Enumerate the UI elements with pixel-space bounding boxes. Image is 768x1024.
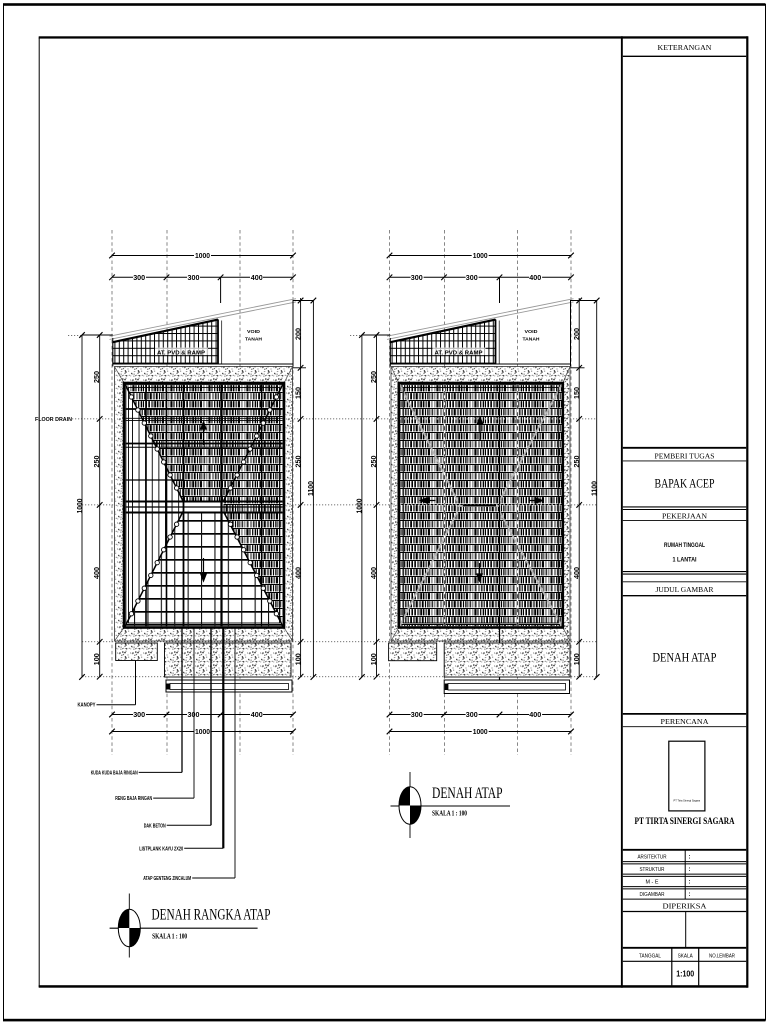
- svg-text:250: 250: [92, 456, 101, 468]
- svg-text:100: 100: [294, 653, 303, 665]
- svg-text:DIPERIKSA: DIPERIKSA: [663, 903, 707, 911]
- svg-text:300: 300: [188, 710, 200, 719]
- svg-text:150: 150: [294, 387, 303, 399]
- svg-text:1000: 1000: [473, 727, 488, 736]
- svg-text:NO.LEMBAR: NO.LEMBAR: [709, 954, 735, 960]
- svg-text:M - E: M - E: [646, 880, 659, 886]
- svg-text:KUDA KUDA BAJA RINGAN: KUDA KUDA BAJA RINGAN: [91, 771, 138, 777]
- svg-text:DENAH ATAP: DENAH ATAP: [653, 651, 717, 665]
- svg-text:150: 150: [572, 387, 581, 399]
- svg-text:TANAH: TANAH: [245, 337, 262, 342]
- svg-text:ARSITEKTUR: ARSITEKTUR: [638, 855, 667, 861]
- svg-text:DENAH ATAP: DENAH ATAP: [432, 785, 503, 802]
- svg-text:TANGGAL: TANGGAL: [639, 954, 661, 960]
- svg-text:400: 400: [251, 710, 263, 719]
- svg-text:AT. PVD & RAMP: AT. PVD & RAMP: [157, 351, 205, 357]
- svg-text:DENAH RANGKA ATAP: DENAH RANGKA ATAP: [152, 907, 271, 924]
- svg-text::: :: [689, 867, 691, 873]
- svg-text:DAK BETON: DAK BETON: [144, 823, 166, 829]
- svg-text:FLOOR DRAIN: FLOOR DRAIN: [35, 417, 72, 423]
- svg-text:KETERANGAN: KETERANGAN: [658, 44, 712, 52]
- svg-text:LISTPLANK KAYU 2X20: LISTPLANK KAYU 2X20: [139, 846, 183, 852]
- svg-text:400: 400: [529, 273, 541, 282]
- svg-text:300: 300: [188, 273, 200, 282]
- svg-text:ATAP GENTENG ZINCALUM: ATAP GENTENG ZINCALUM: [143, 876, 191, 882]
- svg-text:1000: 1000: [355, 499, 364, 514]
- svg-text:1000: 1000: [473, 251, 488, 260]
- svg-text:PERENCANA: PERENCANA: [661, 718, 709, 726]
- svg-text:100: 100: [369, 653, 378, 665]
- svg-text:250: 250: [92, 371, 101, 383]
- svg-text:JUDUL GAMBAR: JUDUL GAMBAR: [656, 586, 714, 594]
- svg-text:400: 400: [572, 567, 581, 579]
- svg-text:250: 250: [294, 456, 303, 468]
- svg-text:BAPAK ACEP: BAPAK ACEP: [655, 477, 715, 491]
- svg-text:1000: 1000: [75, 499, 84, 514]
- svg-text:AT. PVD & RAMP: AT. PVD & RAMP: [435, 351, 483, 357]
- svg-text:300: 300: [411, 710, 423, 719]
- svg-text:PT Tirta Sinergi Sagara: PT Tirta Sinergi Sagara: [674, 799, 701, 803]
- svg-text:100: 100: [572, 653, 581, 665]
- svg-text:RENG BAJA RINGAN: RENG BAJA RINGAN: [115, 796, 152, 802]
- svg-text::: :: [689, 880, 691, 886]
- svg-text:200: 200: [572, 328, 581, 340]
- svg-text:PEMBERI TUGAS: PEMBERI TUGAS: [655, 452, 715, 460]
- svg-text:PT TIRTA SINERGI SAGARA: PT TIRTA SINERGI SAGARA: [635, 816, 735, 826]
- svg-text:VOID: VOID: [247, 329, 261, 334]
- svg-text:TANAH: TANAH: [523, 337, 540, 342]
- svg-text:RUMAH TINGGAL: RUMAH TINGGAL: [664, 542, 705, 549]
- svg-text:SKALA 1 : 100: SKALA 1 : 100: [152, 932, 187, 940]
- svg-text:STRUKTUR: STRUKTUR: [640, 867, 665, 873]
- svg-text::: :: [689, 892, 691, 898]
- svg-text:300: 300: [466, 710, 478, 719]
- svg-text:1:100: 1:100: [676, 970, 694, 979]
- svg-text:300: 300: [411, 273, 423, 282]
- svg-text:250: 250: [369, 371, 378, 383]
- svg-text:1000: 1000: [195, 251, 210, 260]
- svg-text:1 LANTAI: 1 LANTAI: [673, 557, 697, 564]
- svg-text:300: 300: [133, 710, 145, 719]
- svg-text:250: 250: [572, 456, 581, 468]
- svg-text:SKALA: SKALA: [678, 954, 694, 960]
- svg-text:300: 300: [133, 273, 145, 282]
- svg-text:100: 100: [92, 653, 101, 665]
- svg-text:SKALA 1 : 100: SKALA 1 : 100: [432, 810, 467, 818]
- svg-text:DIGAMBAR: DIGAMBAR: [640, 892, 665, 898]
- svg-text:250: 250: [369, 456, 378, 468]
- svg-text::: :: [689, 855, 691, 861]
- svg-text:1100: 1100: [306, 481, 315, 496]
- svg-text:VOID: VOID: [525, 329, 539, 334]
- svg-text:400: 400: [294, 567, 303, 579]
- svg-text:400: 400: [369, 567, 378, 579]
- svg-text:200: 200: [294, 328, 303, 340]
- svg-text:1000: 1000: [195, 727, 210, 736]
- svg-text:1100: 1100: [590, 481, 599, 496]
- svg-text:400: 400: [251, 273, 263, 282]
- svg-text:KANOPY: KANOPY: [78, 703, 97, 709]
- svg-text:300: 300: [466, 273, 478, 282]
- svg-text:400: 400: [92, 567, 101, 579]
- svg-text:400: 400: [529, 710, 541, 719]
- svg-text:PEKERJAAN: PEKERJAAN: [662, 512, 707, 520]
